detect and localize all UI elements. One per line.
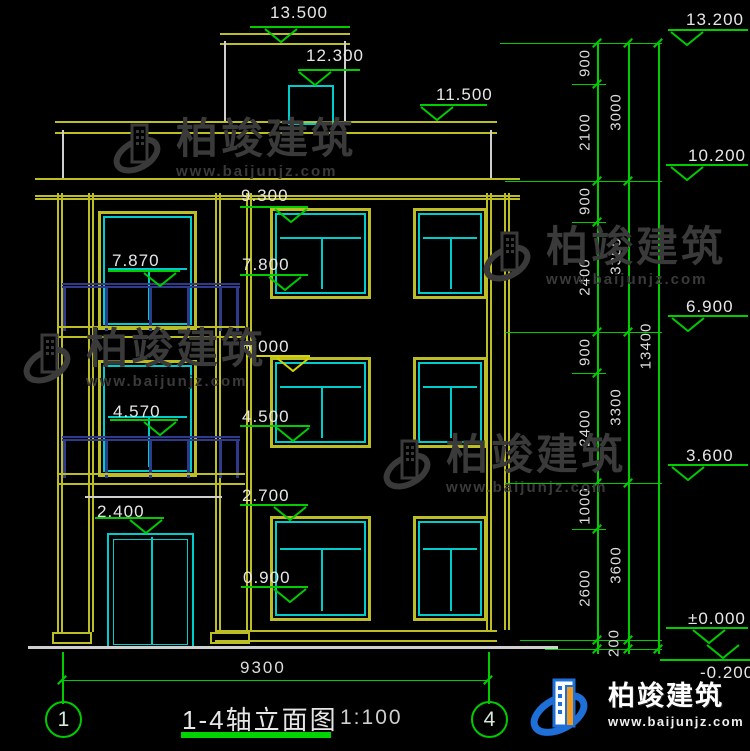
level-9300-label: 9.300 [241,186,289,206]
watermark-url: www.baijunjz.com [176,163,356,180]
entrance-door [107,533,194,649]
dim-extension-line [545,649,662,650]
window-3f-right [413,208,487,299]
watermark-brand: 柏竣建筑 [176,118,356,160]
footing-pad-left [52,632,92,644]
window-glazing [418,213,482,294]
door-lintel-line [85,496,222,498]
level-triangle [670,166,704,181]
level-triangle [671,317,705,332]
axis-bubble-4: 4 [471,701,508,738]
dim-extension-line [572,84,606,85]
level-triangle [706,644,740,659]
level-triangle [129,519,163,534]
bottom-dim-value: 9300 [240,658,286,678]
dim-extension-line [520,640,662,641]
brand-logo: 柏竣建筑 www.baijunjz.com [528,676,744,736]
brand-logo-url: www.baijunjz.com [608,714,744,729]
dim-extension-line [505,181,662,182]
level-0000-label: ±0.000 [688,609,746,629]
dim-value: 2100 [577,113,594,150]
dim-extension-line [572,529,606,530]
level-triangle [298,71,332,86]
level-12300-label: 12.300 [306,46,364,66]
balcony-railing-3f [62,283,240,331]
door-center-split [151,537,153,645]
level-4500-label: 4.500 [242,407,290,427]
level-triangle [264,28,298,43]
level-7870-label: 7.870 [112,251,160,271]
dim-value: 3000 [608,93,625,130]
level-triangle [273,506,307,521]
level-minus0200-line [660,659,750,661]
dim-value: 3600 [608,546,625,583]
watermark: 柏竣建筑 www.baijunjz.com [22,328,266,390]
watermark: 柏竣建筑 www.baijunjz.com [482,226,726,288]
ground-line [28,646,558,649]
level-triangle [273,588,307,603]
watermark-building-icon [112,121,168,177]
watermark-brand: 柏竣建筑 [446,434,626,476]
bottom-dim-line [62,680,489,681]
left-pier [57,193,94,632]
level-triangle [420,106,454,121]
dim-value: 3300 [608,388,625,425]
dim-total-value: 13400 [638,323,655,370]
watermark-building-icon [22,331,78,387]
level-triangle [692,629,726,644]
dim-value: 900 [577,187,594,215]
brand-logo-name: 柏竣建筑 [608,683,744,710]
dim-extension-line [572,373,606,374]
dim-value: 2600 [577,569,594,606]
level-13500-label: 13.500 [270,3,328,23]
level-7800-label: 7.800 [242,255,290,275]
level-triangle [274,208,308,223]
dim-chain-line-3 [658,43,660,654]
level-triangle [276,357,310,372]
axis-bubble-1: 1 [45,701,82,738]
dim-chain-line-2 [628,43,630,654]
watermark-building-icon [382,437,438,493]
level-3600-label: 3.600 [686,446,734,466]
level-triangle [143,421,177,436]
level-triangle [276,427,310,442]
window-1f-right [413,516,487,621]
footing-pad-middle [210,632,250,644]
drawing-scale: 1:100 [340,706,403,730]
level-11500-label: 11.500 [436,85,493,105]
watermark-url: www.baijunjz.com [446,479,626,496]
dim-value: 200 [606,629,623,657]
level-triangle [671,466,705,481]
watermark-brand: 柏竣建筑 [546,226,726,268]
level-triangle [143,272,177,287]
level-0900-label: 0.900 [243,568,291,588]
watermark-url: www.baijunjz.com [546,271,726,288]
upper-wall-left [62,130,64,178]
level-2700-label: 2.700 [242,486,290,506]
dim-value: 900 [577,338,594,366]
watermark-building-icon [482,229,538,285]
watermark-brand: 柏竣建筑 [86,328,266,370]
plinth-band [215,630,497,642]
level-6900-label: 6.900 [686,297,734,317]
level-triangle [670,31,704,46]
window-glazing [418,521,482,616]
dim-chain-line-1 [597,43,599,654]
watermark: 柏竣建筑 www.baijunjz.com [382,434,626,496]
title-underline [181,732,331,738]
watermark: 柏竣建筑 www.baijunjz.com [112,118,356,180]
watermark-url: www.baijunjz.com [86,373,266,390]
dim-value: 900 [577,49,594,77]
upper-wall-right [490,130,492,178]
dim-extension-line [500,43,662,44]
balcony-slab-2f [57,473,245,485]
elevation-drawing-canvas: 柏竣建筑 www.baijunjz.com 柏竣建筑 www.baijunjz.… [0,0,750,751]
balcony-railing-2f [62,436,240,478]
bulkhead-wall-left [224,41,226,121]
level-10200-label: 10.200 [688,146,746,166]
level-13200-label: 13.200 [686,10,744,30]
level-triangle [268,276,302,291]
brand-logo-icon [528,676,600,736]
